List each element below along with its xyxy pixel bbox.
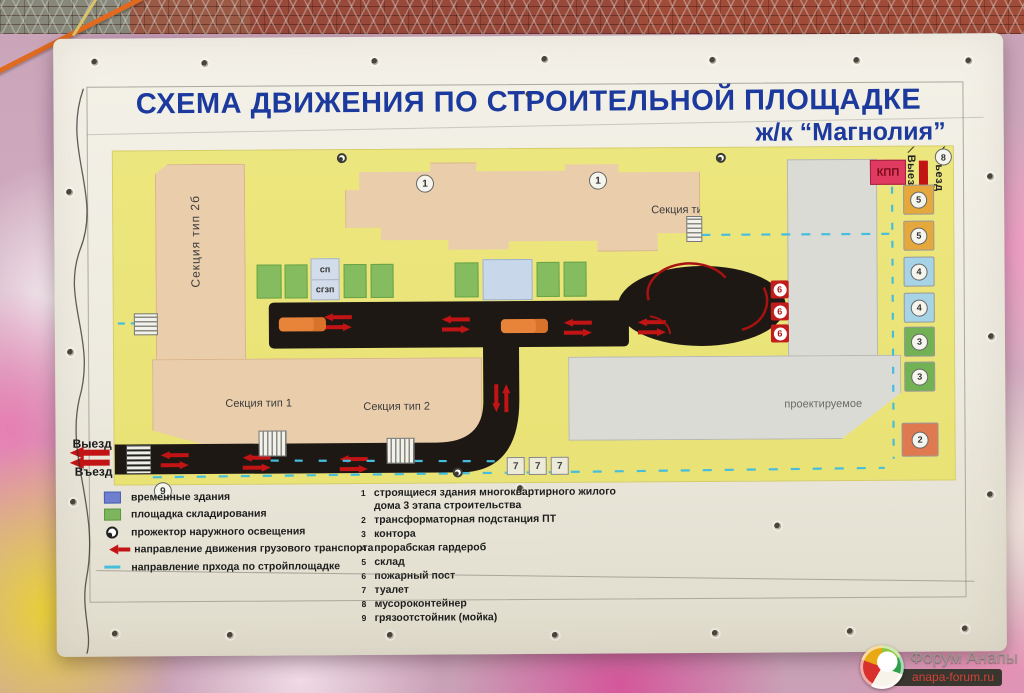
page-subtitle: ж/к “Магнолия”	[755, 117, 945, 147]
legend-item: 7туалет	[361, 582, 651, 596]
grommet	[987, 173, 994, 180]
toilet-marker: 7	[551, 457, 569, 475]
forum-globe-logo	[860, 645, 904, 689]
legend-item: 3контора	[361, 526, 651, 540]
toilet-marker: 7	[507, 457, 525, 475]
legend-item: временные здания	[104, 487, 373, 506]
legend-item: прожектор наружного освещения	[104, 522, 373, 541]
grommet	[965, 57, 972, 64]
toilet-marker: 7	[529, 457, 547, 475]
legend-item: 9грязоотстойник (мойка)	[362, 611, 652, 625]
brick-wall-fence-strip	[0, 0, 1024, 34]
crosswalk	[127, 445, 151, 473]
watermark: Форум Анапы anapa-forum.ru	[860, 645, 1018, 689]
ladder-icon	[134, 313, 158, 335]
floodlight-icon	[453, 467, 463, 477]
legend-symbols: временные здания площадка складирования …	[104, 487, 374, 576]
grommet	[853, 57, 860, 64]
grommet	[987, 491, 994, 498]
marker-8: 8	[935, 148, 952, 165]
grommet	[709, 57, 716, 64]
legend-item: направление движения грузового транспорт…	[104, 539, 373, 558]
grommet	[91, 59, 98, 66]
floodlight-icon	[337, 153, 347, 163]
office-marker: 3	[904, 327, 935, 357]
page-title: СХЕМА ДВИЖЕНИЯ ПО СТРОИТЕЛЬНОЙ ПЛОЩАДКЕ	[53, 83, 1003, 122]
legend-item: 8мусороконтейнер	[362, 597, 652, 611]
foreman-marker: 4	[903, 257, 934, 287]
photo-of-site-plan-banner: СХЕМА ДВИЖЕНИЯ ПО СТРОИТЕЛЬНОЙ ПЛОЩАДКЕ …	[0, 0, 1024, 693]
grommet	[201, 60, 208, 67]
truck-direction-icon	[104, 545, 130, 555]
transformer-marker: 2	[901, 423, 938, 457]
legend-item: 5склад	[361, 554, 651, 568]
legend-item: 2трансформаторная подстанция ПТ	[361, 512, 651, 526]
temp-buildings-swatch	[104, 491, 121, 503]
ladder-icon	[259, 430, 287, 456]
ladder-icon	[387, 438, 415, 464]
legend-numbered: 1строящиеся здания многоквартирного жило…	[361, 485, 652, 626]
grommet	[227, 632, 234, 639]
truck	[279, 317, 326, 331]
grommet	[112, 631, 119, 638]
kpp-checkpoint: КПП	[870, 160, 906, 185]
ladder-icon	[686, 216, 702, 242]
grommet	[988, 333, 995, 340]
truck	[501, 319, 548, 333]
roads-layer	[113, 146, 955, 484]
floodlight-icon	[106, 526, 118, 538]
grommet	[371, 58, 378, 65]
grommet	[67, 349, 74, 356]
watermark-title: Форум Анапы	[892, 648, 1018, 668]
fire-post-marker: 6	[771, 302, 789, 320]
grommet	[774, 522, 781, 529]
legend-item: направление прхода по стройплощадке	[104, 557, 373, 576]
grommet	[66, 189, 73, 196]
floodlight-icon	[716, 153, 726, 163]
site-plan-map: Секция тип 2б Секция тип 1 Секция тип 2 …	[112, 145, 956, 485]
grommet	[552, 632, 559, 639]
grommet	[70, 499, 77, 506]
grommet	[541, 56, 548, 63]
legend-item: 4прорабская гардероб	[361, 540, 651, 554]
office-marker: 3	[904, 362, 935, 392]
banner: СХЕМА ДВИЖЕНИЯ ПО СТРОИТЕЛЬНОЙ ПЛОЩАДКЕ …	[53, 33, 1007, 657]
watermark-url: anapa-forum.ru	[892, 669, 1002, 686]
legend-item: площадка складирования	[104, 504, 373, 523]
warehouse-marker: 5	[903, 221, 934, 251]
storage-area-swatch	[104, 509, 121, 521]
grommet	[387, 632, 394, 639]
gate-entry-label: Въезд	[75, 465, 113, 479]
gate-exit-label: Выезд	[73, 437, 112, 451]
fire-post-marker: 6	[771, 324, 789, 342]
walk-path-icon	[104, 566, 120, 569]
grommet	[847, 628, 854, 635]
fire-post-marker: 6	[771, 280, 789, 298]
legend-item: 6пожарный пост	[361, 568, 651, 582]
legend-item: 1строящиеся здания многоквартирного жило…	[361, 485, 651, 512]
warehouse-marker: 5	[903, 185, 934, 215]
grommet	[712, 630, 719, 637]
foreman-marker: 4	[904, 293, 935, 323]
grommet	[962, 625, 969, 632]
